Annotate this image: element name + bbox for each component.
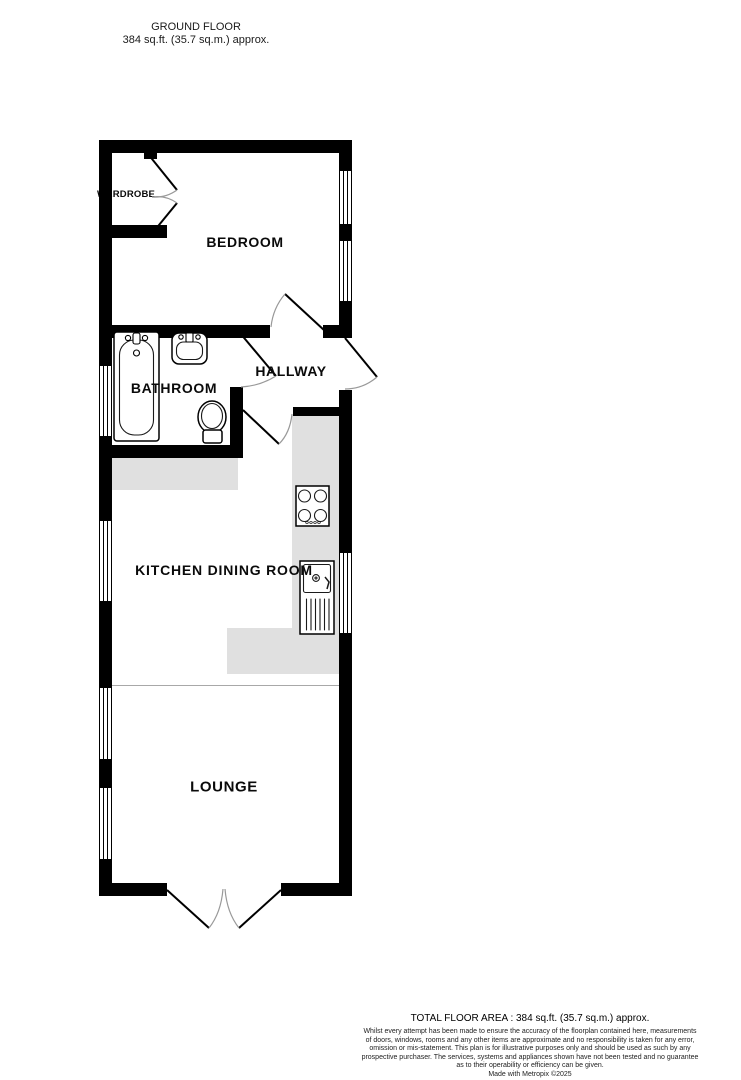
- floorplan-header: GROUND FLOOR 384 sq.ft. (35.7 sq.m.) app…: [46, 21, 346, 47]
- bedroom-label: BEDROOM: [206, 234, 283, 250]
- fixtures-layer: [0, 0, 741, 1080]
- disclaimer-line: of doors, windows, rooms and any other i…: [330, 1037, 730, 1046]
- washbasin-icon: [172, 333, 207, 364]
- disclaimer-line: prospective purchaser. The services, sys…: [330, 1054, 730, 1063]
- disclaimer-line: omission or mis-statement. This plan is …: [330, 1045, 730, 1054]
- disclaimer-line: as to their operability or efficiency ca…: [330, 1062, 730, 1071]
- disclaimer-line: Whilst every attempt has been made to en…: [330, 1028, 730, 1037]
- metropix-credit: Made with Metropix ©2025: [330, 1071, 730, 1080]
- hob-icon: [296, 486, 329, 526]
- toilet-icon: [198, 401, 226, 443]
- floor-title: GROUND FLOOR: [46, 21, 346, 34]
- floorplan-footer: TOTAL FLOOR AREA : 384 sq.ft. (35.7 sq.m…: [330, 1013, 730, 1080]
- lounge-label: LOUNGE: [190, 779, 258, 796]
- french-doors-icon: [167, 889, 281, 928]
- kitchen-door-swing-icon: [243, 410, 292, 444]
- hallway-label: HALLWAY: [255, 363, 326, 379]
- kitchen-dining-room-label: KITCHEN DINING ROOM: [135, 562, 313, 578]
- bathroom-label: BATHROOM: [131, 380, 217, 396]
- floorplan-canvas: GROUND FLOOR 384 sq.ft. (35.7 sq.m.) app…: [0, 0, 741, 1080]
- entrance-door-swing-icon: [345, 338, 377, 389]
- total-floor-area: TOTAL FLOOR AREA : 384 sq.ft. (35.7 sq.m…: [330, 1013, 730, 1024]
- wardrobe-doors-icon: [148, 154, 177, 236]
- floor-area-subtitle: 384 sq.ft. (35.7 sq.m.) approx.: [46, 34, 346, 47]
- bedroom-door-swing-icon: [271, 294, 325, 331]
